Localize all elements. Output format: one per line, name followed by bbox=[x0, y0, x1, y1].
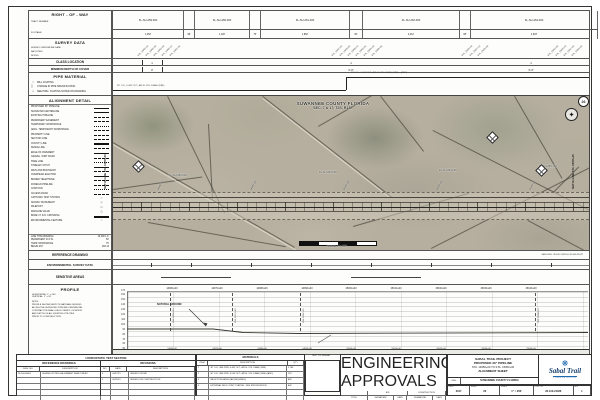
column-header: DESCRIPTION bbox=[127, 367, 195, 371]
right-of-way-band: FL-SU-259.000FL-SU-260.000FL-SU-261.000F… bbox=[112, 10, 590, 40]
pipe-legend-item: ▏CHANGE IN PIPE SPECIFICATION bbox=[31, 85, 111, 88]
legend-label: CONTOUR bbox=[31, 188, 43, 190]
tract-cells: FL-SU-259.000FL-SU-260.000FL-SU-261.000F… bbox=[113, 11, 598, 29]
parcel-line bbox=[433, 130, 590, 240]
legend-line bbox=[94, 108, 109, 109]
survey-data-band: STA. 14955+10STA. 14956+85STA. 14958+40S… bbox=[112, 38, 590, 60]
legend-label: PROPERTY LINE bbox=[31, 134, 50, 136]
aerial-tract-label: FL-SU-264.000 bbox=[439, 169, 457, 172]
dot-symbol-icon bbox=[94, 124, 109, 127]
legend-line bbox=[94, 112, 109, 113]
legend-label: PERMANENT EASEMENT bbox=[31, 120, 59, 122]
table-cell: 4 bbox=[197, 384, 209, 389]
legend-line bbox=[94, 135, 109, 136]
circle-symbol-icon: ○ bbox=[94, 197, 109, 200]
pipe-legend-item: ▪SEE PIPE / COATING NOTED ON DRAWING bbox=[31, 90, 111, 93]
aerial-photo-strip: SUWANNEE COUNTY FLORIDA SEC. 7 & 17, T2S… bbox=[112, 95, 590, 252]
pipe-legend-item: ○MILL COATING bbox=[31, 81, 111, 84]
pipe-material-legend: ○MILL COATING▏CHANGE IN PIPE SPECIFICATI… bbox=[29, 81, 111, 93]
legend-line bbox=[94, 117, 109, 118]
table-cell: 1 bbox=[197, 366, 209, 371]
titleblock-field: DATE2017 bbox=[448, 386, 470, 395]
legend-line bbox=[94, 148, 109, 149]
table-cell bbox=[287, 390, 304, 395]
legend-label: GRAVEL / DIRT ROAD bbox=[31, 156, 55, 158]
environmental-tick bbox=[251, 263, 252, 267]
table-cell: 09/25/15 bbox=[111, 378, 129, 383]
table-cell: ISSUED FOR BID bbox=[129, 372, 195, 377]
table-cell: 26-100-00001 bbox=[17, 372, 41, 377]
pipe-material-band: 36" O.D., 0.465" W.T., API-5L X70, DSAW,… bbox=[112, 72, 590, 97]
double-symbol-icon bbox=[94, 142, 109, 146]
environmental-tick bbox=[311, 263, 312, 267]
alignment-totals: LINE THIS DRAWING10,300 L.F.PERMANENT R.… bbox=[29, 234, 111, 250]
legend-label: WETLAND BOUNDARY bbox=[31, 170, 56, 172]
circle-symbol-icon: ○ bbox=[94, 219, 109, 222]
environmental-tick bbox=[491, 263, 492, 267]
tract-cell: FL-SU-264.000 bbox=[471, 11, 598, 29]
revisions-table: REVISIONS NO.DATEDESCRIPTION 004/17/15IS… bbox=[100, 360, 196, 396]
longdash-symbol-icon bbox=[94, 133, 109, 136]
table-cell: A/R bbox=[287, 384, 304, 389]
environmental-tick bbox=[191, 263, 192, 267]
table-cell: 36" O.D. LINE PIPE, 0.465" W.T., API-5L … bbox=[209, 366, 287, 371]
field-value: 1 bbox=[574, 389, 590, 394]
env-baseline bbox=[113, 265, 589, 266]
table-cell bbox=[41, 378, 101, 383]
parcel-line bbox=[318, 95, 431, 127]
column-header: DESCRIPTION bbox=[40, 367, 101, 371]
legend-line bbox=[94, 139, 109, 140]
legend-label: BORE / H.D.D. CROSSING bbox=[31, 215, 60, 217]
approvals-title: ENGINEERING APPROVALS bbox=[341, 355, 446, 391]
legend-label: ACCESS ROAD bbox=[31, 193, 48, 195]
field-value: 26 bbox=[470, 389, 499, 394]
table-cell bbox=[129, 390, 195, 395]
survey-marker-diamond-icon bbox=[486, 131, 499, 144]
dashdot-symbol-icon bbox=[94, 129, 109, 132]
tract-cell bbox=[250, 11, 261, 29]
environmental-tick bbox=[151, 263, 152, 267]
materials-rows: 136" O.D. LINE PIPE, 0.465" W.T., API-5L… bbox=[197, 366, 304, 400]
existing-pipeline-line bbox=[113, 211, 589, 212]
sheet-number-bubble: 26 bbox=[578, 96, 589, 107]
dash-symbol-icon bbox=[94, 120, 109, 123]
segment-value: 3'-0" bbox=[528, 67, 534, 71]
survey-side-label: SURVEY CENTERLINE DATA bbox=[31, 47, 61, 49]
approvals-subcol: TITLE bbox=[341, 396, 368, 400]
legend-line bbox=[94, 189, 109, 190]
natural-ground-label: NATURAL GROUND bbox=[157, 303, 182, 306]
pipe-spec-line-right bbox=[346, 77, 589, 78]
double-symbol-icon bbox=[94, 215, 109, 219]
parcel-line bbox=[528, 220, 590, 252]
column-header: DATE bbox=[110, 367, 127, 371]
pipe-spec-left-label: 36" O.D., 0.465" W.T., API-5L X70, DSAW,… bbox=[117, 85, 164, 87]
legend-label: BURIED TELEPHONE bbox=[31, 179, 55, 181]
materials-table: MATERIALS ITEMDESCRIPTIONQTY 136" O.D. L… bbox=[196, 354, 305, 396]
solid-symbol-icon bbox=[94, 111, 109, 114]
legend-line bbox=[94, 126, 109, 127]
parcel-line bbox=[148, 222, 286, 247]
dash-symbol-icon bbox=[94, 192, 109, 195]
approvals-subcol: DATE bbox=[394, 396, 408, 400]
table-cell: ISSUED FOR CONSTRUCTION bbox=[129, 378, 195, 383]
pipeline-corridor bbox=[113, 192, 589, 220]
legend-label: STREAM / DITCH bbox=[31, 165, 50, 167]
table-cell: A/R bbox=[287, 378, 304, 383]
table-cell: 9,780' bbox=[287, 366, 304, 371]
column-header: NO. bbox=[101, 367, 110, 371]
survey-data-box: SURVEY DATA SURVEY CENTERLINE DATA FACIL… bbox=[28, 38, 112, 60]
table-cell bbox=[197, 390, 209, 395]
square-symbol-icon: □ bbox=[94, 206, 109, 209]
alignment-detail-legend: PROPOSED 36" PIPELINESURVEYED CENTERLINE… bbox=[29, 105, 111, 223]
heavy-symbol-icon bbox=[94, 106, 109, 109]
approvals-group bbox=[341, 391, 368, 395]
legend-label: OVERHEAD ELECTRIC bbox=[31, 174, 56, 176]
county-title: SUWANNEE COUNTY FLORIDA SEC. 7 & 17, T2S… bbox=[243, 101, 423, 110]
table-cell bbox=[41, 390, 101, 395]
corridor-station-label: 15020+00 bbox=[435, 180, 443, 191]
column-header: QTY bbox=[288, 361, 304, 365]
profile-title: PROFILE bbox=[29, 287, 111, 292]
legend-label: EDGE OF PAVEMENT bbox=[31, 152, 55, 154]
table-cell: INDUCTION BENDS (AS REQUIRED) bbox=[209, 378, 287, 383]
pipe-legend-label: SEE PIPE / COATING NOTED ON DRAWING bbox=[37, 90, 86, 93]
table-cell bbox=[111, 396, 129, 400]
title-block-text: SABAL TRAIL PROJECT PROPOSED 36" PIPELIN… bbox=[448, 355, 539, 384]
legend-label: TEMPORARY WORKSPACE bbox=[31, 124, 61, 126]
table-cell bbox=[101, 396, 111, 400]
bar-icon: ▏ bbox=[31, 85, 35, 88]
table-cell: 520' bbox=[287, 372, 304, 377]
table-cell bbox=[111, 384, 129, 389]
table-cell: 2 bbox=[197, 372, 209, 377]
table-cell bbox=[197, 396, 209, 400]
footage-label: FOOTAGE bbox=[31, 32, 42, 34]
environmental-tick bbox=[371, 263, 372, 267]
ground-profile-line bbox=[113, 285, 589, 354]
environmental-tick bbox=[551, 263, 552, 267]
table-cell: 3 bbox=[197, 378, 209, 383]
table-row-empty bbox=[197, 396, 304, 400]
road-line bbox=[262, 98, 389, 197]
tract-cell: FL-SU-260.000 bbox=[195, 11, 250, 29]
county-field: SUWANNEE COUNTY FLORIDA bbox=[461, 378, 538, 384]
reference-drawing-note: SEE DWG. 26-100-21025 & 26-100-21027 bbox=[542, 254, 583, 256]
environmental-tick bbox=[431, 263, 432, 267]
proposed-pipeline-centerline bbox=[113, 207, 589, 208]
survey-data-title: SURVEY DATA bbox=[29, 40, 111, 45]
segment-value: 1 bbox=[530, 60, 532, 64]
table-cell bbox=[17, 390, 41, 395]
parcel-line bbox=[262, 96, 393, 198]
parcel-line bbox=[208, 124, 213, 199]
tract-cell bbox=[460, 11, 471, 29]
column-header: ITEM bbox=[197, 361, 208, 365]
segment-value: 3' bbox=[151, 67, 153, 71]
reference-drawings-rows: 26-100-00001LEGEND, NOTES & ALIGNMENT SH… bbox=[17, 372, 101, 400]
column-header: DWG. NO. bbox=[17, 367, 40, 371]
xline-symbol-icon bbox=[94, 147, 109, 150]
legend-label: TREE LINE bbox=[31, 161, 43, 163]
pipe-spec-line-left bbox=[113, 90, 346, 91]
legend-item: ENVIRONMENTAL FEATURE○ bbox=[29, 219, 111, 224]
table-cell bbox=[17, 396, 41, 400]
sensitive-areas-title: SENSITIVE AREAS bbox=[29, 270, 111, 285]
table-cell bbox=[287, 396, 304, 400]
pipe-legend-label: CHANGE IN PIPE SPECIFICATION bbox=[37, 85, 75, 88]
table-cell: 04/17/15 bbox=[111, 372, 129, 377]
scale-label: SCALE: 1" = 200' bbox=[283, 245, 391, 248]
legend-line bbox=[94, 130, 109, 131]
legend-label: SECTION LINE bbox=[31, 138, 47, 140]
segment-value: 3'-0" bbox=[348, 67, 354, 71]
approvals-subcol: SIGNATURE bbox=[368, 396, 394, 400]
field-value: 1" = 200' bbox=[500, 389, 533, 394]
alignment-sheet: RIGHT - OF - WAY TRACT NUMBER FOOTAGE SU… bbox=[0, 0, 600, 400]
titleblock-field: REV1 bbox=[574, 386, 591, 395]
table-cell bbox=[41, 384, 101, 389]
profile-plot: 1701601501401301201101009080706050 14960… bbox=[112, 284, 590, 355]
tract-cell: FL-SU-259.000 bbox=[113, 11, 184, 29]
legend-label: ADDL. TEMPORARY WORKSPACE bbox=[31, 129, 69, 131]
table-cell bbox=[209, 390, 287, 395]
pipe-material-box: PIPE MATERIAL ○MILL COATING▏CHANGE IN PI… bbox=[28, 72, 112, 97]
sheet-type: ALIGNMENT SHEET bbox=[478, 370, 508, 373]
table-cell: LEGEND, NOTES & ALIGNMENT SHEET INDEX bbox=[41, 372, 101, 377]
tract-cell: FL-SU-261.000 bbox=[261, 11, 350, 29]
survey-side-label: NOTES bbox=[31, 55, 39, 57]
north-arrow-icon: ✦ bbox=[565, 108, 578, 121]
diamond-symbol-icon: ◇ bbox=[94, 201, 109, 204]
approvals-group: CONSTRUCTION bbox=[408, 391, 446, 395]
titleblock-field: DWG. NO.26-100-21026 bbox=[534, 386, 574, 395]
table-cell bbox=[209, 396, 287, 400]
pipe-legend-label: MILL COATING bbox=[37, 81, 54, 84]
segment-value: 1 bbox=[350, 60, 352, 64]
reference-drawings-table: REFERENCE DRAWINGS DWG. NO.DESCRIPTION 2… bbox=[16, 360, 102, 396]
approvals-table: ENGINEERING APPROVALS BIDCONSTRUCTIONTIT… bbox=[340, 354, 447, 396]
profile-scale-vertical: VERTICAL: 1" = 20' bbox=[32, 296, 111, 298]
table-cell bbox=[101, 390, 111, 395]
table-cell bbox=[17, 384, 41, 389]
section-township-range: SEC. 7 & 17, T2S, R13E bbox=[243, 106, 423, 110]
tract-number-label: TRACT NUMBER bbox=[31, 21, 48, 23]
legend-line bbox=[94, 194, 109, 195]
dashdot-symbol-icon bbox=[94, 115, 109, 118]
right-of-way-title: RIGHT - OF - WAY bbox=[29, 12, 111, 17]
approvals-subcol: SIGNATURE bbox=[407, 396, 433, 400]
table-cell bbox=[17, 378, 41, 383]
logo-wordmark: Sabal Trail bbox=[549, 368, 581, 375]
profile-note-line: PRIOR TO CONSTRUCTION. bbox=[32, 316, 111, 319]
revisions-rows: 004/17/15ISSUED FOR BID109/25/15ISSUED F… bbox=[101, 372, 195, 400]
title-block: SABAL TRAIL PROJECT PROPOSED 36" PIPELIN… bbox=[447, 354, 592, 385]
pipe-material-title: PIPE MATERIAL bbox=[29, 74, 111, 79]
legend-label: ENVIRONMENTAL FEATURE bbox=[31, 220, 62, 222]
not-to-scale-label: NOT TO SCALE bbox=[296, 354, 346, 357]
table-cell bbox=[129, 384, 195, 389]
tract-cell bbox=[184, 11, 195, 29]
field-value: 26-100-21026 bbox=[534, 389, 573, 394]
legend-label: PROPOSED 36" PIPELINE bbox=[31, 106, 59, 108]
legend-label: FENCE LINE bbox=[31, 147, 45, 149]
legend-label: MAINLINE VALVE bbox=[31, 211, 50, 213]
legend-label: FOREIGN PIPELINE bbox=[31, 184, 53, 186]
titleblock-field: SCALE1" = 200' bbox=[500, 386, 534, 395]
use-label: USE: bbox=[448, 378, 461, 384]
logo-subtitle: TRANSMISSION bbox=[553, 376, 577, 379]
legend-label: CATHODIC TEST STATION bbox=[31, 197, 60, 199]
profile-legend-box: PROFILE HORIZONTAL: 1" = 200' VERTICAL: … bbox=[28, 284, 112, 355]
sensitive-area-bracket bbox=[161, 277, 231, 278]
legend-label: EXISTING PIPELINE bbox=[31, 115, 53, 117]
table-cell: 36" O.D. LINE PIPE, 0.540" W.T., API-5L … bbox=[209, 372, 287, 377]
field-value: 2017 bbox=[448, 389, 469, 394]
table-cell bbox=[41, 396, 101, 400]
approvals-group: BID bbox=[368, 391, 407, 395]
sensitive-area-bracket bbox=[351, 277, 421, 278]
title-block-fields: DATE2017SHEET26SCALE1" = 200'DWG. NO.26-… bbox=[447, 385, 592, 396]
table-cell: EXTERNAL FIELD JOINT COATING - SEE SPECI… bbox=[209, 384, 287, 389]
workspace-edge-line bbox=[113, 197, 589, 198]
fsq-icon: ▪ bbox=[31, 90, 35, 93]
table-cell bbox=[101, 384, 111, 389]
match-line-right: MATCH LINE STA. 15053+00 bbox=[572, 154, 575, 189]
aerial-tract-label: FL-SU-262.000 bbox=[319, 171, 337, 174]
profile-notes: NOTE:PROFILE SHOWN DEPICTS NATURAL GROUN… bbox=[32, 301, 111, 318]
table-cell bbox=[129, 396, 195, 400]
legend-line bbox=[94, 143, 109, 145]
tract-cell bbox=[350, 11, 363, 29]
corridor-station-label: 15040+00 bbox=[528, 180, 536, 191]
table-cell bbox=[111, 390, 129, 395]
pipe-spec-right-label: 36" O.D., 0.540" W.T., API-5L X70, DSAW,… bbox=[351, 72, 407, 74]
corridor-station-label: 14980+00 bbox=[249, 180, 257, 191]
table-cell: 0 bbox=[101, 372, 111, 377]
legend-label: SURVEYED CENTERLINE bbox=[31, 111, 59, 113]
alignment-detail-title: ALIGNMENT DETAIL bbox=[29, 98, 111, 105]
corridor-station-label: 15000+00 bbox=[342, 180, 350, 191]
legend-line bbox=[94, 121, 109, 122]
match-line-left: MATCH LINE STA. 14950+00 bbox=[104, 154, 107, 189]
pipe-spec-break bbox=[346, 77, 347, 90]
alignment-detail-box: ALIGNMENT DETAIL PROPOSED 36" PIPELINESU… bbox=[28, 95, 112, 252]
legend-label: MILEPOST bbox=[31, 206, 43, 208]
dashdotdot-symbol-icon bbox=[94, 138, 109, 141]
sabal-trail-logo: ❋ Sabal Trail TRANSMISSION bbox=[539, 355, 591, 384]
approvals-subcol: DATE bbox=[433, 396, 446, 400]
notes-box bbox=[305, 360, 340, 392]
titleblock-field: SHEET26 bbox=[470, 386, 500, 395]
aerial-tract-label: FL-SU-260.000 bbox=[169, 174, 187, 177]
right-of-way-box: RIGHT - OF - WAY TRACT NUMBER FOOTAGE bbox=[28, 10, 112, 40]
legend-label: SURVEY MONUMENT bbox=[31, 202, 55, 204]
survey-side-label: FACILITIES bbox=[31, 51, 43, 53]
segment-value: 1 bbox=[151, 60, 153, 64]
table-row-empty bbox=[17, 396, 101, 400]
tract-cell: FL-SU-262.000 bbox=[363, 11, 460, 29]
approvals-body: BIDCONSTRUCTIONTITLESIGNATUREDATESIGNATU… bbox=[341, 391, 446, 400]
table-row-empty bbox=[101, 396, 195, 400]
triangle-symbol-icon: △ bbox=[94, 210, 109, 213]
approvals-subcol-row: TITLESIGNATUREDATESIGNATUREDATE bbox=[341, 396, 446, 400]
table-cell: 1 bbox=[101, 378, 111, 383]
column-header: DESCRIPTION bbox=[208, 361, 288, 365]
legend-label: COUNTY LINE bbox=[31, 143, 47, 145]
